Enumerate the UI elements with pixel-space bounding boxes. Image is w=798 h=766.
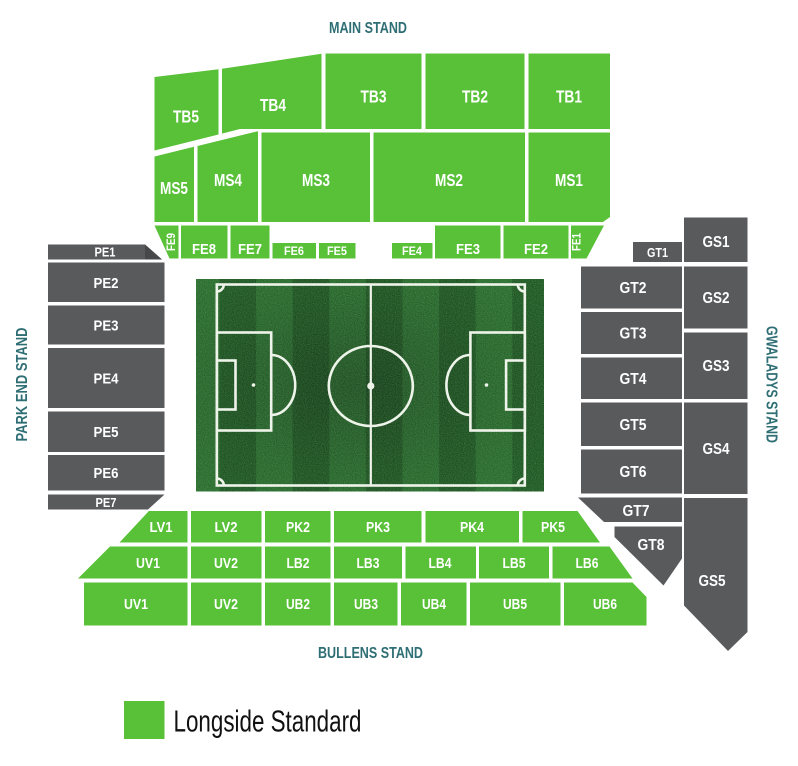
svg-text:Longside Standard: Longside Standard — [174, 704, 362, 739]
svg-text:MAIN STAND: MAIN STAND — [329, 20, 407, 37]
svg-text:GT3: GT3 — [620, 326, 647, 343]
svg-text:FE1: FE1 — [572, 232, 584, 251]
svg-text:LB2: LB2 — [287, 556, 310, 572]
svg-text:PK3: PK3 — [366, 520, 390, 536]
svg-text:PE7: PE7 — [96, 496, 117, 510]
svg-text:PK4: PK4 — [460, 520, 484, 536]
svg-text:FE8: FE8 — [192, 242, 216, 258]
svg-text:UB6: UB6 — [593, 597, 617, 613]
svg-text:PK5: PK5 — [541, 520, 565, 536]
svg-text:GT4: GT4 — [620, 371, 647, 388]
svg-text:GT5: GT5 — [620, 417, 647, 434]
svg-text:UV1: UV1 — [136, 556, 160, 572]
svg-text:PE2: PE2 — [94, 275, 119, 292]
svg-text:UB4: UB4 — [422, 597, 446, 613]
svg-text:GS5: GS5 — [699, 573, 726, 590]
svg-text:GS3: GS3 — [703, 358, 730, 375]
svg-text:FE7: FE7 — [238, 242, 262, 258]
svg-text:GS4: GS4 — [703, 441, 730, 458]
svg-text:PARK END STAND: PARK END STAND — [14, 328, 31, 442]
svg-text:MS1: MS1 — [555, 170, 583, 190]
svg-text:TB3: TB3 — [361, 87, 387, 107]
svg-text:GT7: GT7 — [623, 503, 650, 520]
svg-text:FE5: FE5 — [327, 244, 347, 258]
svg-text:TB2: TB2 — [462, 87, 488, 107]
svg-text:LB5: LB5 — [503, 556, 526, 572]
svg-text:MS5: MS5 — [160, 178, 188, 198]
svg-text:BULLENS STAND: BULLENS STAND — [318, 645, 423, 662]
svg-text:MS3: MS3 — [302, 170, 330, 190]
svg-text:UV1: UV1 — [124, 597, 148, 613]
svg-text:LB3: LB3 — [357, 556, 380, 572]
svg-text:LB6: LB6 — [576, 556, 599, 572]
svg-text:FE9: FE9 — [166, 233, 178, 251]
svg-text:UB5: UB5 — [503, 597, 527, 613]
svg-text:FE2: FE2 — [524, 242, 548, 258]
svg-text:FE4: FE4 — [402, 244, 422, 258]
svg-text:TB4: TB4 — [260, 95, 286, 115]
svg-text:UB3: UB3 — [354, 597, 378, 613]
svg-text:GT2: GT2 — [620, 280, 647, 297]
svg-text:UV2: UV2 — [214, 556, 238, 572]
svg-text:PE4: PE4 — [94, 371, 120, 388]
svg-text:GWALADYS STAND: GWALADYS STAND — [763, 326, 780, 443]
svg-text:PE3: PE3 — [94, 318, 119, 335]
svg-text:GT1: GT1 — [647, 246, 668, 260]
svg-text:LB4: LB4 — [429, 556, 452, 572]
svg-text:GS2: GS2 — [703, 290, 730, 307]
svg-text:MS2: MS2 — [435, 170, 463, 190]
svg-text:UB2: UB2 — [286, 597, 310, 613]
svg-text:GT8: GT8 — [638, 537, 665, 554]
svg-text:PE6: PE6 — [94, 465, 119, 482]
svg-text:MS4: MS4 — [214, 170, 242, 190]
svg-text:FE6: FE6 — [284, 244, 304, 258]
svg-text:LV1: LV1 — [150, 520, 173, 536]
svg-text:GS1: GS1 — [703, 234, 730, 251]
svg-text:FE3: FE3 — [456, 242, 480, 258]
svg-text:PK2: PK2 — [286, 520, 310, 536]
svg-text:PE1: PE1 — [95, 246, 116, 260]
svg-text:TB5: TB5 — [173, 107, 199, 127]
svg-text:GT6: GT6 — [620, 464, 647, 481]
svg-text:UV2: UV2 — [214, 597, 238, 613]
svg-text:PE5: PE5 — [94, 424, 119, 441]
svg-text:LV2: LV2 — [215, 520, 238, 536]
svg-text:TB1: TB1 — [556, 87, 582, 107]
